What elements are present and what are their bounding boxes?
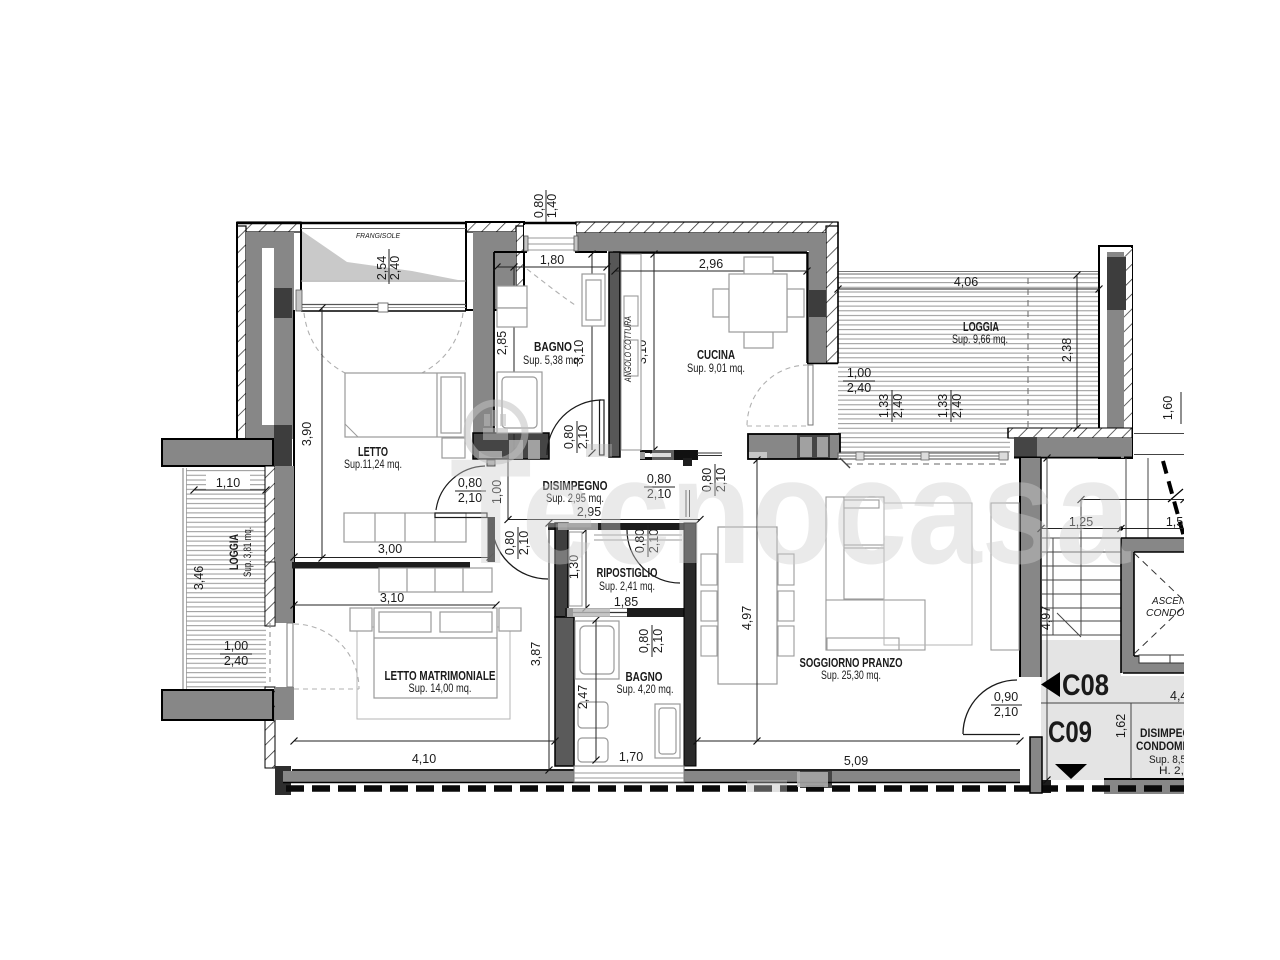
- svg-text:2,40: 2,40: [388, 256, 402, 280]
- svg-text:2,40: 2,40: [891, 394, 905, 418]
- svg-text:2,40: 2,40: [950, 394, 964, 418]
- svg-text:3,10: 3,10: [380, 591, 404, 605]
- svg-text:BAGNO: BAGNO: [626, 670, 663, 684]
- svg-text:3,90: 3,90: [300, 422, 314, 446]
- svg-text:2,38: 2,38: [1060, 338, 1074, 362]
- svg-text:Sup. 4,20 mq.: Sup. 4,20 mq.: [617, 684, 674, 696]
- svg-text:BAGNO: BAGNO: [534, 340, 572, 354]
- svg-text:5,09: 5,09: [844, 754, 868, 768]
- svg-text:4,06: 4,06: [954, 275, 978, 289]
- svg-text:2,40: 2,40: [224, 654, 248, 668]
- svg-text:2,40: 2,40: [847, 381, 871, 395]
- svg-text:1,70: 1,70: [619, 750, 643, 764]
- svg-text:2,10: 2,10: [651, 629, 665, 653]
- svg-text:2,96: 2,96: [699, 257, 723, 271]
- svg-text:LOGGIA: LOGGIA: [963, 320, 999, 334]
- svg-text:LETTO MATRIMONIALE: LETTO MATRIMONIALE: [385, 669, 496, 683]
- svg-text:1,00: 1,00: [224, 639, 248, 653]
- svg-text:1,85: 1,85: [614, 595, 638, 609]
- svg-text:4,97: 4,97: [1039, 606, 1053, 630]
- svg-text:3,87: 3,87: [529, 642, 543, 666]
- svg-text:1,33: 1,33: [877, 394, 891, 418]
- svg-text:C09: C09: [1048, 716, 1092, 749]
- svg-text:SOGGIORNO PRANZO: SOGGIORNO PRANZO: [800, 656, 903, 670]
- svg-text:Sup. 3,81 mq.: Sup. 3,81 mq.: [242, 527, 254, 577]
- svg-text:ANGOLO COTTURA: ANGOLO COTTURA: [623, 316, 633, 383]
- svg-text:C08: C08: [1062, 669, 1109, 702]
- svg-text:FRANGISOLE: FRANGISOLE: [356, 231, 401, 240]
- svg-text:2,10: 2,10: [994, 705, 1018, 719]
- svg-text:Sup.11,24 mq.: Sup.11,24 mq.: [344, 459, 402, 471]
- svg-text:Sup. 9,66 mq.: Sup. 9,66 mq.: [952, 334, 1008, 346]
- svg-text:3,00: 3,00: [378, 542, 402, 556]
- svg-text:Sup. 14,00 mq.: Sup. 14,00 mq.: [409, 683, 472, 695]
- svg-text:4,10: 4,10: [412, 752, 436, 766]
- svg-text:2,47: 2,47: [576, 685, 590, 709]
- svg-text:3,10: 3,10: [572, 340, 586, 364]
- svg-text:LETTO: LETTO: [358, 445, 388, 459]
- svg-text:1,60: 1,60: [1161, 396, 1175, 420]
- svg-text:0,80: 0,80: [637, 629, 651, 653]
- svg-text:2,85: 2,85: [495, 331, 509, 355]
- svg-text:1,40: 1,40: [545, 194, 559, 218]
- svg-text:Tecnocasa: Tecnocasa: [450, 427, 1131, 595]
- svg-text:0,90: 0,90: [994, 690, 1018, 704]
- svg-text:Sup. 25,30 mq.: Sup. 25,30 mq.: [821, 670, 881, 682]
- svg-text:2,54: 2,54: [375, 256, 389, 280]
- svg-text:CUCINA: CUCINA: [697, 348, 735, 362]
- svg-text:4,97: 4,97: [740, 606, 754, 630]
- svg-text:1,80: 1,80: [540, 253, 564, 267]
- svg-text:Sup. 9,01 mq.: Sup. 9,01 mq.: [687, 363, 745, 375]
- svg-text:3,46: 3,46: [192, 566, 206, 590]
- svg-text:LOGGIA: LOGGIA: [227, 534, 241, 570]
- svg-text:1,00: 1,00: [847, 366, 871, 380]
- svg-text:1,62: 1,62: [1114, 714, 1128, 738]
- svg-text:0,80: 0,80: [532, 194, 546, 218]
- svg-text:1,10: 1,10: [216, 476, 240, 490]
- svg-text:1,33: 1,33: [936, 394, 950, 418]
